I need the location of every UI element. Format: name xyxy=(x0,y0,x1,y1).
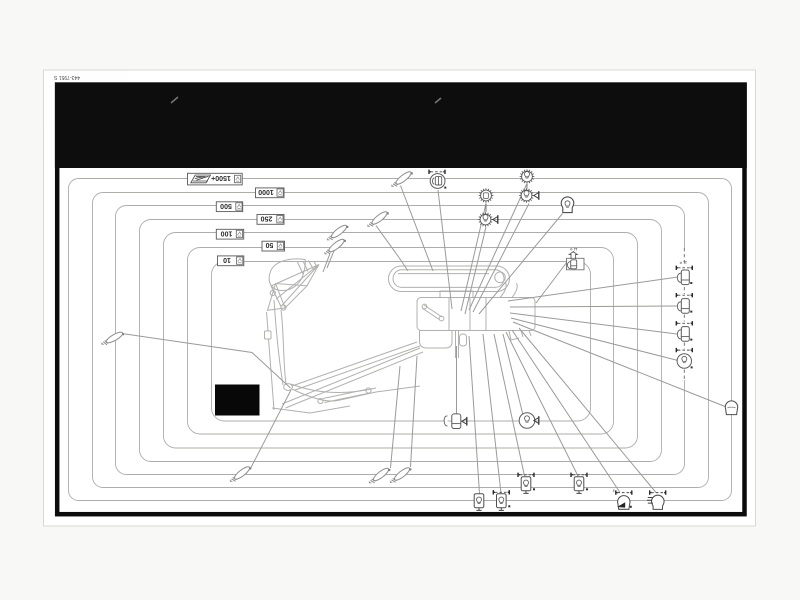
svg-text:500: 500 xyxy=(220,202,232,209)
svg-text:1000: 1000 xyxy=(258,188,274,195)
svg-text:50: 50 xyxy=(266,241,274,248)
svg-text:443-7951 S: 443-7951 S xyxy=(53,74,80,80)
svg-text:1500+: 1500+ xyxy=(211,174,231,181)
svg-text:250: 250 xyxy=(261,214,273,221)
svg-text:10: 10 xyxy=(223,256,231,263)
svg-text:100: 100 xyxy=(221,229,233,236)
